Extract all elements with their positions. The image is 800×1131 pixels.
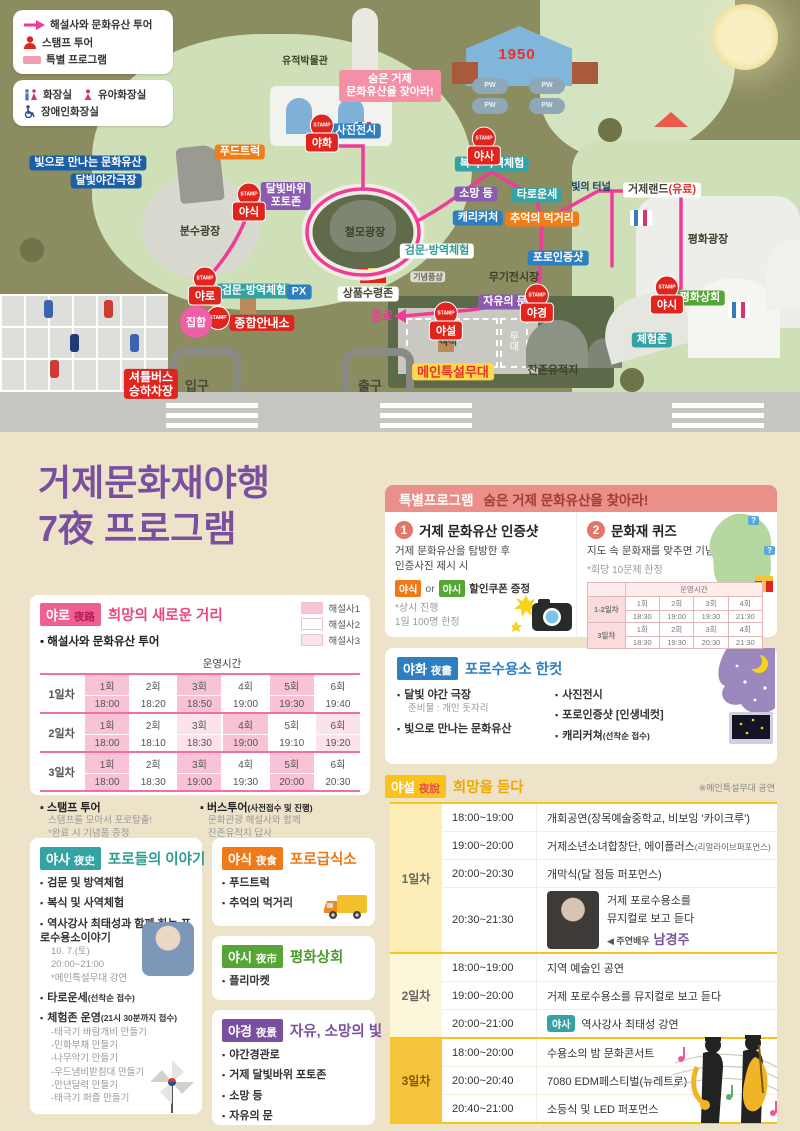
festival-flyer: 유적박물관숨은 거제 문화유산을 찾아라!사진전시1950PWPWPWPW복식·… (0, 0, 800, 1131)
time-cell: 19:00 (222, 696, 268, 714)
bullet-sub: -태극기 바람개비 만들기 (51, 1026, 192, 1039)
time-cell: 21:30 (728, 637, 762, 649)
event-text: 야사역사강사 최태성 강연 (547, 1015, 679, 1033)
map-label: 평화광장 (688, 234, 728, 247)
yaseol-note: ※메인특설무대 공연 (699, 781, 775, 794)
day-label: 1일차 (390, 804, 442, 952)
page-title-line1: 거제문화재야행 (38, 460, 270, 506)
bullet-line: ▪거제 달빛바위 포토존 (222, 1068, 365, 1082)
stamp-marker: STAMP야화 (305, 114, 339, 153)
day-cell: 2일차 (40, 713, 84, 752)
bullet-glyph: ▪ (40, 878, 43, 888)
special-item-2: ? ? 2 문화재 퀴즈 지도 속 문화재를 맞추면 기념품 증정 *회당 10… (577, 512, 777, 637)
day-cell: 1-2일차 (588, 597, 626, 623)
bullet-text: 복식 및 사역체험 (47, 897, 124, 909)
bullet-text: 소망 등 (229, 1090, 262, 1102)
stamp-marker: STAMP야시 (650, 276, 684, 315)
bullet-glyph: ▪ (40, 636, 44, 648)
list-item: ▪소망 등 (222, 1089, 365, 1103)
bullet-glyph: ▪ (555, 690, 558, 700)
event-title: 지역 예술인 공연 (547, 963, 624, 975)
special-title: 숨은 거제 문화유산을 찾아라! (484, 489, 649, 509)
session-cell: 2회 (130, 713, 176, 735)
event-title: 소등식 및 LED 퍼포먼스 (547, 1104, 659, 1116)
event-desc: 개회공연(장목예술중학교, 비보잉 '카이크루') (536, 804, 777, 831)
bullet-text: 포로인증샷 [인생네컷] (562, 709, 663, 721)
bullet-glyph: ▪ (555, 731, 558, 741)
event-title: 거제 포로수용소를 뮤지컬로 보고 듣다 (547, 991, 721, 1003)
special-header: 특별프로그램 숨은 거제 문화유산을 찾아라! (385, 485, 777, 512)
camera-icon (512, 593, 574, 635)
legend-row: 해설사와 문화유산 투어 (23, 17, 163, 32)
session-cell: 2회 (659, 597, 693, 611)
map-label: 종료 (371, 309, 393, 323)
list-item: ▪달빛 야간 극장준비물 : 개인 돗자리 (397, 688, 555, 716)
event-time: 18:00~19:00 (442, 804, 536, 831)
map-label: 기념품샵 (410, 271, 445, 282)
stamp-label: 야로 (188, 286, 222, 306)
legend-row: 화장실 유아화장실 (23, 87, 163, 102)
time-cell: 18:00 (84, 735, 130, 753)
bullet-text: 플리마켓 (229, 975, 269, 987)
table-row: 1-2일차1회2회3회4회 (588, 597, 763, 611)
map-label: PW (541, 82, 552, 90)
day-cell: 3일차 (588, 623, 626, 649)
bullet-sub: 준비물 : 개인 돗자리 (408, 702, 555, 715)
performer-photo (547, 891, 599, 949)
map-label: 입구 (185, 378, 209, 393)
map-label: 종합안내소 (229, 315, 294, 331)
guide-legend-row: 해설사1 (301, 601, 360, 615)
bullet-text: 거제 달빛바위 포토존 (229, 1069, 326, 1081)
session-cell: 2회 (659, 623, 693, 637)
bus-tour-note: ▪ 버스투어(사전접수 및 진행) 문화관광 해설사와 함께 잔존유적지 답사 (200, 799, 360, 841)
session-cell: 4회 (728, 597, 762, 611)
guide-swatch (301, 634, 323, 646)
time-cell: 19:30 (269, 696, 315, 714)
session-cell: 1회 (625, 597, 659, 611)
actor-name: 남경주 (654, 932, 690, 947)
guide-label: 해설사3 (328, 633, 360, 647)
time-cell: 20:30 (694, 637, 728, 649)
time-cell: 20:30 (315, 774, 360, 792)
map-label: PW (484, 82, 495, 90)
map-label: 달빛바위 포토존 (261, 182, 311, 210)
event-desc: 거제 포로수용소를 뮤지컬로 보고 듣다 (536, 981, 777, 1009)
time-cell: 18:10 (130, 735, 176, 753)
bullet-line: ▪푸드트럭 (222, 876, 365, 890)
corner-cell (40, 654, 84, 674)
list-item: ▪포로인증샷 [인생네컷] (555, 708, 685, 722)
session-cell: 1회 (84, 713, 130, 735)
yasik-badge: 야식 夜食 (222, 847, 283, 870)
yagyeong-bullet-list: ▪야간경관로▪거제 달빛바위 포토존▪소망 등▪자유의 문 (222, 1048, 365, 1123)
question-tag: ? (748, 516, 759, 525)
legend-label: 해설사와 문화유산 투어 (50, 17, 152, 32)
session-cell: 4회 (222, 674, 268, 696)
card-yahwa: 야화 夜畵 포로수용소 한컷 ▪달빛 야간 극장준비물 : 개인 돗자리▪빛으로… (385, 648, 777, 764)
list-item: ▪빛으로 만나는 문화유산 (397, 722, 555, 736)
yaseol-badge: 야설 夜說 (385, 775, 446, 798)
event-desc: 개막식(달 점등 퍼포먼스) (536, 859, 777, 887)
map-label: 빛의 터널 (571, 182, 611, 194)
bullet-line: ▪검문 및 방역체험 (40, 876, 192, 890)
map-label: 캐리커처 (453, 211, 503, 226)
bullet-text: 빛으로 만나는 문화유산 (404, 723, 511, 735)
map-label: PW (541, 102, 552, 110)
map-label: 검문·방역체험 (217, 284, 291, 299)
bullet-line: ▪빛으로 만나는 문화유산 (397, 722, 555, 736)
event-time: 18:00~19:00 (442, 954, 536, 981)
time-cell: 19:20 (315, 735, 360, 753)
yaro-badge: 야로 夜路 (40, 603, 101, 626)
table-row: 2일차1회2회3회4회5회6회 (40, 713, 360, 735)
time-cell: 19:00 (659, 611, 693, 623)
special-item-1: 1 거제 문화유산 인증샷 거제 문화유산을 탐방한 후 인증사진 제시 시 야… (385, 512, 577, 637)
card-yaseol: 야설 夜說 희망을 듣다 ※메인특설무대 공연 1일차18:00~19:00개회… (385, 775, 777, 1125)
yasa-inline-badge: 야사 (547, 1015, 575, 1032)
stamp-marker: STAMP야식 (232, 183, 266, 222)
table-header-row: 운영시간 (40, 654, 360, 674)
stamp-marker: 집합 (180, 306, 212, 338)
event-text: 거제소년소녀합창단, 에이플러스(리얼라이브퍼포먼스) (547, 837, 771, 855)
session-cell: 2회 (130, 752, 176, 774)
festival-map: 유적박물관숨은 거제 문화유산을 찾아라!사진전시1950PWPWPWPW복식·… (0, 0, 800, 432)
map-label: 분수광장 (180, 226, 220, 239)
legend-row: 스탬프 투어 (23, 35, 163, 50)
bullet-glyph: ▪ (222, 1070, 225, 1080)
event-desc: 거제 포로수용소를 뮤지컬로 보고 듣다◀ 주연배우남경주 (536, 887, 777, 952)
yasi-mini-badge: 야시 (439, 580, 465, 597)
stamp-label: 야식 (232, 202, 266, 222)
bullet-glyph: ▪ (222, 976, 225, 986)
session-cell: 3회 (694, 623, 728, 637)
time-cell: 21:30 (728, 611, 762, 623)
session-cell: 6회 (315, 674, 360, 696)
bullet-text: 추억의 먹거리 (229, 897, 293, 909)
legend-row: 특별 프로그램 (23, 52, 163, 67)
bullet-text: 사진전시 (562, 689, 602, 701)
yasa-badge: 야사 夜史 (40, 847, 101, 870)
day-label: 2일차 (390, 954, 442, 1037)
guide-label: 해설사2 (328, 617, 360, 631)
bullet-line: ▪달빛 야간 극장 (397, 688, 555, 702)
time-cell: 18:30 (625, 611, 659, 623)
yasi-bullet-list: ▪플리마켓 (222, 974, 365, 988)
yaro-schedule-table: 운영시간1일차1회2회3회4회5회6회18:0018:2018:5019:001… (40, 654, 360, 792)
time-cell: 18:30 (176, 735, 222, 753)
lecturer-photo (142, 922, 194, 976)
event-title: 수용소의 밤 문화콘서트 (547, 1048, 654, 1060)
bullet-glyph: ▪ (40, 919, 43, 929)
event-time: 20:40~21:00 (442, 1094, 536, 1122)
day-cell: 1일차 (40, 674, 84, 713)
guide-legend-row: 해설사3 (301, 633, 360, 647)
yahwa-bullets-right: ▪사진전시▪포로인증샷 [인생네컷]▪캐리커쳐(선착순 접수) (555, 682, 685, 743)
yasik-title: 포로급식소 (290, 848, 357, 869)
guide-legend: 해설사1해설사2해설사3 (301, 601, 360, 649)
event-title: 거제 포로수용소를 뮤지컬로 보고 듣다 (607, 895, 694, 925)
session-cell: 5회 (269, 713, 315, 735)
route-end-arrow (394, 309, 406, 323)
list-item: ▪사진전시 (555, 688, 685, 702)
event-title-small: (리얼라이브퍼포먼스) (695, 842, 771, 852)
musicians-illustration (669, 1023, 781, 1131)
map-legend-facilities: 화장실 유아화장실 장애인화장실 (13, 80, 173, 126)
yaro-title: 희망의 새로운 거리 (108, 604, 223, 625)
list-item: ▪푸드트럭 (222, 876, 365, 890)
list-item: ▪검문 및 방역체험 (40, 876, 192, 890)
table-header-row: 운영시간 (588, 583, 763, 597)
bullet-line: ▪포로인증샷 [인생네컷] (555, 708, 685, 722)
event-time: 19:00~20:00 (442, 831, 536, 859)
bullet-text: 푸드트럭 (229, 877, 269, 889)
yasa-title: 포로들의 이야기 (108, 848, 205, 869)
bullet-text: 달빛 야간 극장 (404, 689, 471, 701)
food-truck-icon (323, 893, 369, 921)
legend-label: 특별 프로그램 (46, 52, 107, 67)
map-label: 숨은 거제 문화유산을 찾아라! (339, 70, 441, 102)
table-row: 1일차1회2회3회4회5회6회 (40, 674, 360, 696)
event-title: 거제소년소녀합창단, 에이플러스 (547, 841, 695, 853)
stamp-person-icon (23, 36, 37, 49)
event-time: 20:00~20:30 (442, 859, 536, 887)
list-item: ▪복식 및 사역체험 (40, 896, 192, 910)
bullet-glyph: ▪ (397, 724, 400, 734)
table-row: 3일차1회2회3회4회5회6회 (40, 752, 360, 774)
yahwa-title: 포로수용소 한컷 (465, 658, 562, 679)
actor-prefix: ◀ 주연배우 (607, 936, 650, 946)
list-item: ▪타로운세(선착순 접수) (40, 991, 192, 1005)
event-text: 지역 예술인 공연 (547, 959, 624, 977)
event-time: 20:00~20:40 (442, 1066, 536, 1094)
event-time: 19:00~20:00 (442, 981, 536, 1009)
time-cell: 19:00 (176, 774, 222, 792)
event-text: 수용소의 밤 문화콘서트 (547, 1044, 654, 1062)
tour-arrow-icon (23, 20, 45, 30)
card-special-program: 특별프로그램 숨은 거제 문화유산을 찾아라! 1 거제 문화유산 인증샷 거제… (385, 485, 777, 637)
table-row: 18:0018:1018:3019:0019:1019:20 (40, 735, 360, 753)
badge-korean: 야로 (46, 605, 70, 624)
event-desc: 지역 예술인 공연 (536, 954, 777, 981)
session-cell: 3회 (176, 713, 222, 735)
session-cell: 5회 (269, 752, 315, 774)
stamp-marker: STAMP야경 (520, 284, 554, 323)
map-label: 거제랜드(유료) (623, 183, 701, 198)
yasik-mini-badge: 야식 (395, 580, 421, 597)
session-cell: 6회 (315, 713, 360, 735)
bullet-line: ▪체험존 운영(21시 30분까지 접수) (40, 1011, 192, 1025)
stamp-tour-note: ▪ 스탬프 투어 스탬프를 모아서 포로탈출! *완료 시 기념품 증정 (40, 799, 200, 841)
event-time: 20:30~21:30 (442, 887, 536, 952)
time-cell: 18:30 (625, 637, 659, 649)
map-label: 메인특설무대 (412, 363, 494, 380)
event-desc: 거제소년소녀합창단, 에이플러스(리얼라이브퍼포먼스) (536, 831, 777, 859)
session-cell: 3회 (176, 752, 222, 774)
special-program-swatch (23, 56, 41, 64)
label-paid: (유료) (668, 184, 696, 196)
bullet-text: 야간경관로 (229, 1049, 280, 1061)
guide-swatch (301, 602, 323, 614)
actor-line: ◀ 주연배우남경주 (607, 929, 694, 949)
map-label: PW (484, 102, 495, 110)
event-text: 소등식 및 LED 퍼포먼스 (547, 1100, 659, 1118)
session-cell: 1회 (84, 752, 130, 774)
yaseol-title: 희망을 듣다 (453, 776, 524, 797)
session-cell: 3회 (176, 674, 222, 696)
card-yasik: 야식 夜食 포로급식소 ▪푸드트럭▪추억의 먹거리 (212, 838, 375, 926)
list-item: ▪야간경관로 (222, 1048, 365, 1062)
map-label: 1950 (498, 46, 535, 64)
time-cell: 18:00 (84, 696, 130, 714)
bullet-line: ▪복식 및 사역체험 (40, 896, 192, 910)
map-label: 잔존유적지 (528, 365, 579, 378)
map-label: 소망 등 (454, 187, 497, 202)
page-title: 거제문화재야행 7夜 프로그램 (38, 460, 270, 552)
card-yasa: 야사 夜史 포로들의 이야기 ▪검문 및 방역체험▪복식 및 사역체험▪역사강사… (30, 838, 202, 1114)
bullet-line: ▪사진전시 (555, 688, 685, 702)
map-label: 유적박물관 (282, 56, 328, 68)
yasi-badge: 야시 夜市 (222, 945, 283, 968)
map-label: 철모광장 (345, 227, 385, 240)
bullet-glyph: ▪ (222, 1111, 225, 1121)
badge-hanja: 夜路 (74, 609, 95, 624)
yaro-footnotes: ▪ 스탬프 투어 스탬프를 모아서 포로탈출! *완료 시 기념품 증정 ▪ 버… (40, 799, 360, 841)
table-row: 18:0018:3019:0019:3020:0020:30 (40, 774, 360, 792)
special-badge: 특별프로그램 (399, 489, 474, 509)
stamp-label: 야화 (305, 133, 339, 153)
yasa-header: 야사 夜史 포로들의 이야기 (40, 847, 192, 870)
event-text: 거제 포로수용소를 뮤지컬로 보고 듣다◀ 주연배우남경주 (607, 891, 694, 949)
map-label: PX (287, 285, 312, 300)
bullet-text: 자유의 문 (229, 1110, 273, 1122)
event-time: 18:00~20:00 (442, 1039, 536, 1066)
time-cell: 18:00 (84, 774, 130, 792)
event-text: 개회공연(장목예술중학교, 비보잉 '카이크루') (547, 809, 750, 827)
program-section: 거제문화재야행 7夜 프로그램 야로 夜路 희망의 새로운 거리 해설사1해설사… (0, 432, 800, 1131)
time-cell: 19:30 (694, 611, 728, 623)
map-label: 포로인증샷 (528, 251, 589, 266)
list-item: ▪거제 달빛바위 포토존 (222, 1068, 365, 1082)
card-yaro: 야로 夜路 희망의 새로운 거리 해설사1해설사2해설사3 ▪ 해설사와 문화유… (30, 595, 370, 795)
time-cell: 19:30 (222, 774, 268, 792)
time-cell: 19:30 (659, 637, 693, 649)
session-cell: 3회 (694, 597, 728, 611)
time-cell: 18:30 (130, 774, 176, 792)
card-yagyeong: 야경 夜景 자유, 소망의 빛 ▪야간경관로▪거제 달빛바위 포토존▪소망 등▪… (212, 1010, 375, 1125)
bullet-glyph: ▪ (222, 1091, 225, 1101)
map-label: 출구 (358, 378, 382, 393)
bullet-glyph: ▪ (222, 898, 225, 908)
guide-legend-row: 해설사2 (301, 617, 360, 631)
number-1-icon: 1 (395, 521, 413, 539)
number-2-icon: 2 (587, 521, 605, 539)
bullet-line: ▪플리마켓 (222, 974, 365, 988)
map-label: 타로운세 (512, 188, 562, 203)
map-label: 체험존 (632, 333, 672, 348)
bullet-glyph: ▪ (222, 1050, 225, 1060)
bullet-line: ▪캐리커쳐(선착순 접수) (555, 729, 685, 743)
bullet-line: ▪자유의 문 (222, 1109, 365, 1123)
guide-label: 해설사1 (328, 601, 360, 615)
baby-toilet-icon (83, 89, 93, 101)
bullet-glyph: ▪ (555, 710, 558, 720)
bullet-glyph: ▪ (222, 878, 225, 888)
session-cell: 1회 (84, 674, 130, 696)
session-cell: 4회 (728, 623, 762, 637)
bullet-sub: -민화부채 만들기 (51, 1039, 192, 1052)
time-cell: 19:00 (222, 735, 268, 753)
bullet-line: ▪타로운세(선착순 접수) (40, 991, 192, 1005)
legend-label: 장애인화장실 (41, 104, 99, 119)
yagyeong-title: 자유, 소망의 빛 (290, 1020, 382, 1041)
yaseol-day-group: 1일차18:00~19:00개회공연(장목예술중학교, 비보잉 '카이크루')1… (390, 802, 777, 952)
bullet-glyph: ▪ (40, 993, 43, 1003)
event-title: 7080 EDM페스티벌(뉴레트로) (547, 1076, 687, 1088)
corner-cell (588, 583, 626, 597)
event-title: 역사강사 최태성 강연 (581, 1019, 678, 1031)
bullet-inline: (선착순 접수) (88, 993, 135, 1003)
card-yasi: 야시 夜市 평화상회 ▪플리마켓 (212, 936, 375, 1000)
time-header: 운영시간 (625, 583, 762, 597)
legend-row: 장애인화장실 (23, 104, 163, 119)
list-item: ▪캐리커쳐(선착순 접수) (555, 729, 685, 743)
time-header: 운영시간 (84, 654, 360, 674)
event-text: 개막식(달 점등 퍼포먼스) (547, 865, 662, 883)
session-cell: 2회 (130, 674, 176, 696)
time-cell: 18:50 (176, 696, 222, 714)
day-label: 3일차 (390, 1039, 442, 1122)
bullet-inline: (21시 30분까지 접수) (101, 1013, 177, 1023)
legend-label: 유아화장실 (98, 87, 146, 102)
legend-label: 스탬프 투어 (42, 35, 93, 50)
bullet-line: ▪야간경관로 (222, 1048, 365, 1062)
toilet-icon (23, 89, 38, 101)
legend-label: 화장실 (43, 87, 72, 102)
bullet-text: 검문 및 방역체험 (47, 877, 124, 889)
map-label: 무대 (506, 331, 518, 351)
time-cell: 20:00 (269, 774, 315, 792)
bullet-line: ▪소망 등 (222, 1089, 365, 1103)
time-cell: 19:40 (315, 696, 360, 714)
time-cell: 18:20 (130, 696, 176, 714)
event-text: 7080 EDM페스티벌(뉴레트로) (547, 1072, 687, 1090)
map-legend-tours: 해설사와 문화유산 투어 스탬프 투어 특별 프로그램 (13, 10, 173, 74)
map-label: 추억의 먹거리 (505, 212, 579, 227)
yahwa-bullets-left: ▪달빛 야간 극장준비물 : 개인 돗자리▪빛으로 만나는 문화유산 (397, 682, 555, 743)
guide-swatch (301, 618, 323, 630)
wheelchair-icon (23, 105, 36, 118)
night-sky-illustration (667, 648, 775, 752)
session-cell: 5회 (269, 674, 315, 696)
yagyeong-badge: 야경 夜景 (222, 1019, 283, 1042)
map-label: 푸드트럭 (215, 145, 265, 160)
event-time: 20:00~21:00 (442, 1009, 536, 1037)
gather-point: 집합 (180, 306, 212, 338)
event-title: 개회공연(장목예술중학교, 비보잉 '카이크루') (547, 813, 750, 825)
stamp-label: 야사 (467, 146, 501, 166)
yahwa-badge: 야화 夜畵 (397, 657, 458, 680)
bullet-text: 타로운세 (47, 992, 87, 1004)
quiz-schedule-table: 운영시간1-2일차1회2회3회4회18:3019:0019:3021:303일차… (587, 582, 763, 649)
event-text: 거제 포로수용소를 뮤지컬로 보고 듣다 (547, 987, 721, 1005)
map-label: 상품수령존 (338, 287, 399, 302)
event-title: 개막식(달 점등 퍼포먼스) (547, 869, 662, 881)
table-row: 18:0018:2018:5019:0019:3019:40 (40, 696, 360, 714)
session-cell: 1회 (625, 623, 659, 637)
time-cell: 19:10 (269, 735, 315, 753)
bullet-glyph: ▪ (40, 898, 43, 908)
